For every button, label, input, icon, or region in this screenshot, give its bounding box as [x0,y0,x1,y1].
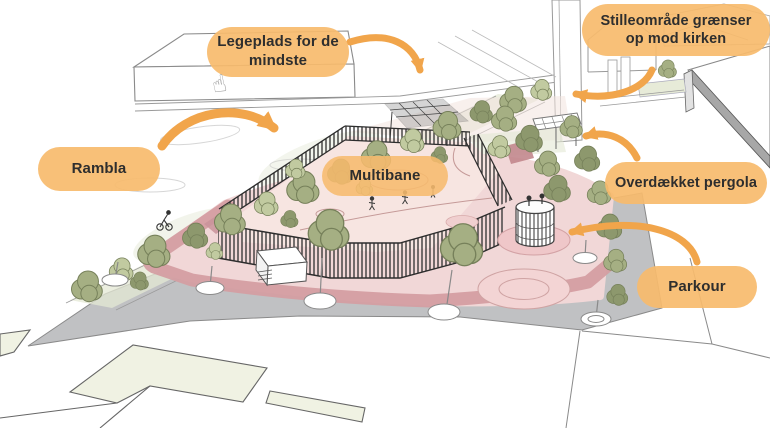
label-legeplads: Legeplads for de mindste [207,27,349,77]
arrow-legeplads [350,38,420,70]
building-footprints [0,330,365,428]
goal-box [256,247,307,285]
label-stilleomraade: Stilleområde grænser op mod kirken [582,4,770,56]
label-parkour: Parkour [637,266,757,308]
parkour-tower [516,194,554,247]
label-pergola: Overdækket pergola [605,162,767,204]
arrow-rambla [162,113,274,146]
label-multibane: Multibane [322,156,448,196]
site-plan-illustration[interactable]: Legeplads for de mindste Stilleområde gr… [0,0,770,428]
label-rambla: Rambla [38,147,160,191]
scene-drawing [0,0,770,428]
